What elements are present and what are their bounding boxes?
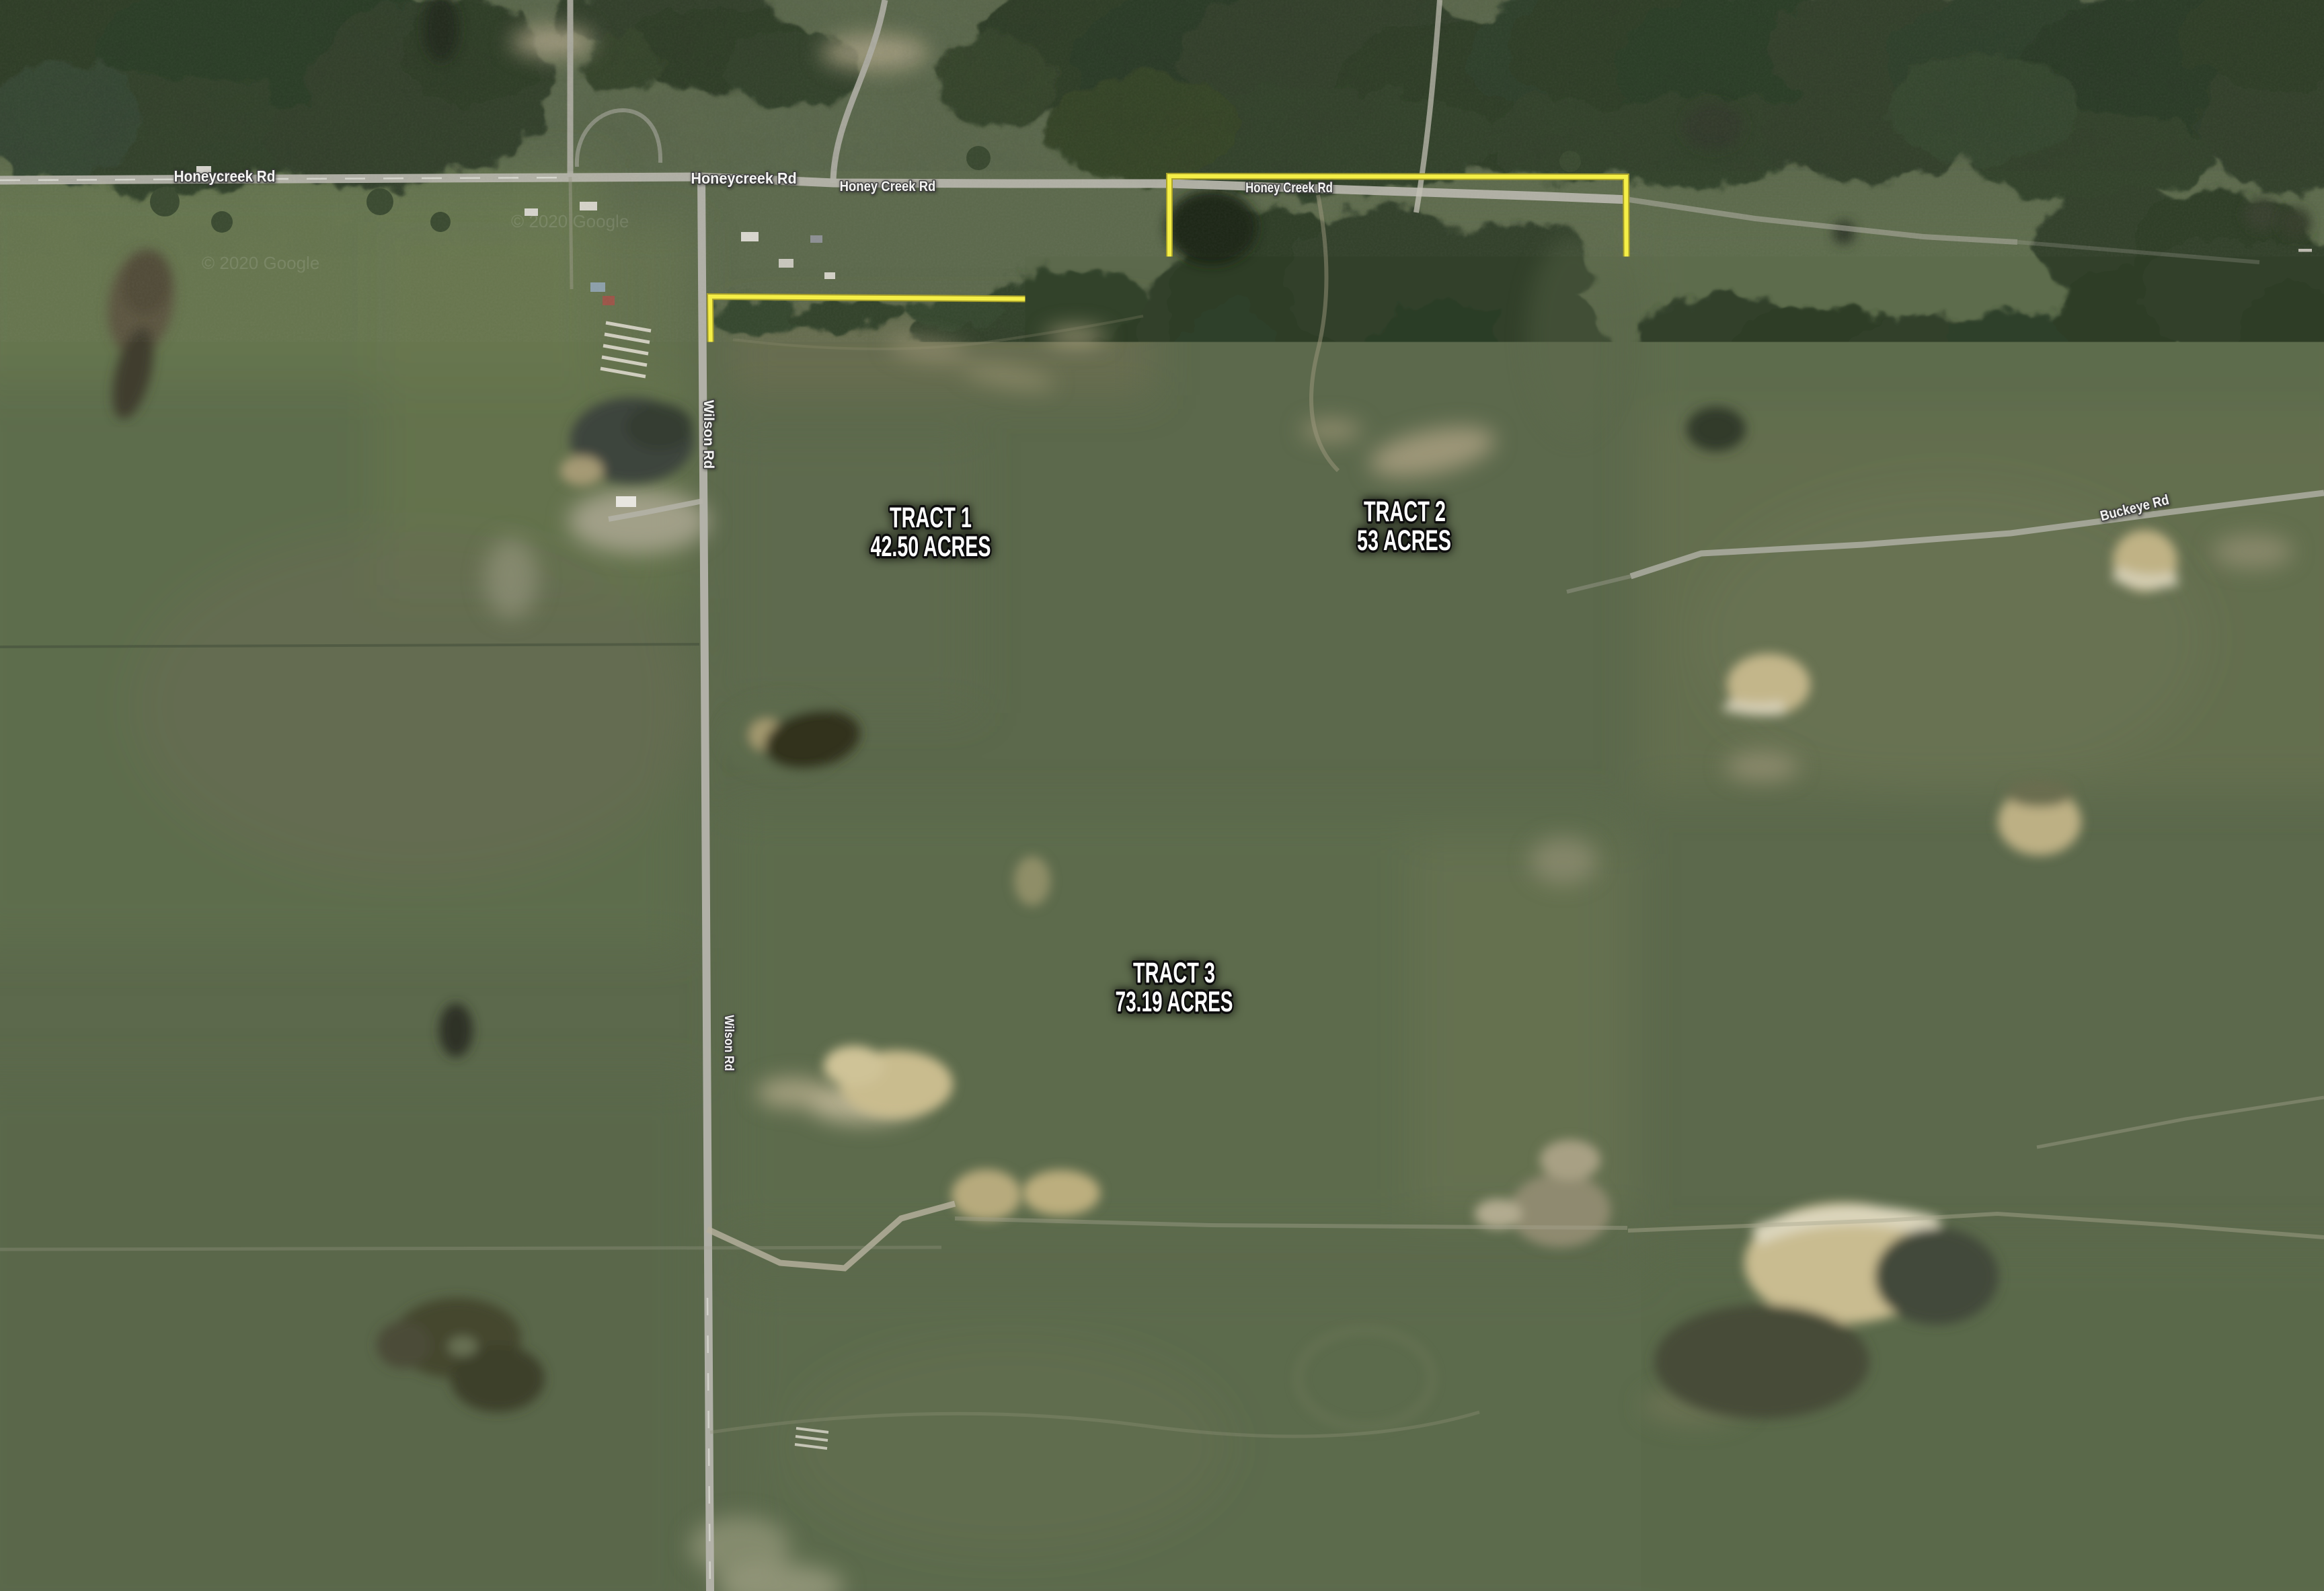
svg-text:53 ACRES: 53 ACRES <box>1357 524 1451 556</box>
svg-text:42.50 ACRES: 42.50 ACRES <box>871 530 991 562</box>
svg-text:Honey Creek Rd: Honey Creek Rd <box>840 179 936 194</box>
svg-text:TRACT 2: TRACT 2 <box>1364 495 1446 527</box>
svg-text:Honeycreek Rd: Honeycreek Rd <box>174 167 276 185</box>
svg-text:TRACT 1: TRACT 1 <box>890 501 972 533</box>
svg-text:TRACT 3: TRACT 3 <box>1133 956 1215 988</box>
svg-text:ox: ox <box>0 1567 18 1591</box>
svg-text:Honey Creek Rd: Honey Creek Rd <box>1245 180 1333 196</box>
svg-text:73.19 ACRES: 73.19 ACRES <box>1116 985 1233 1018</box>
svg-text:Wilson Rd: Wilson Rd <box>701 400 716 469</box>
svg-text:Honeycreek Rd: Honeycreek Rd <box>691 169 796 187</box>
svg-text:Wilson Rd: Wilson Rd <box>722 1015 736 1071</box>
